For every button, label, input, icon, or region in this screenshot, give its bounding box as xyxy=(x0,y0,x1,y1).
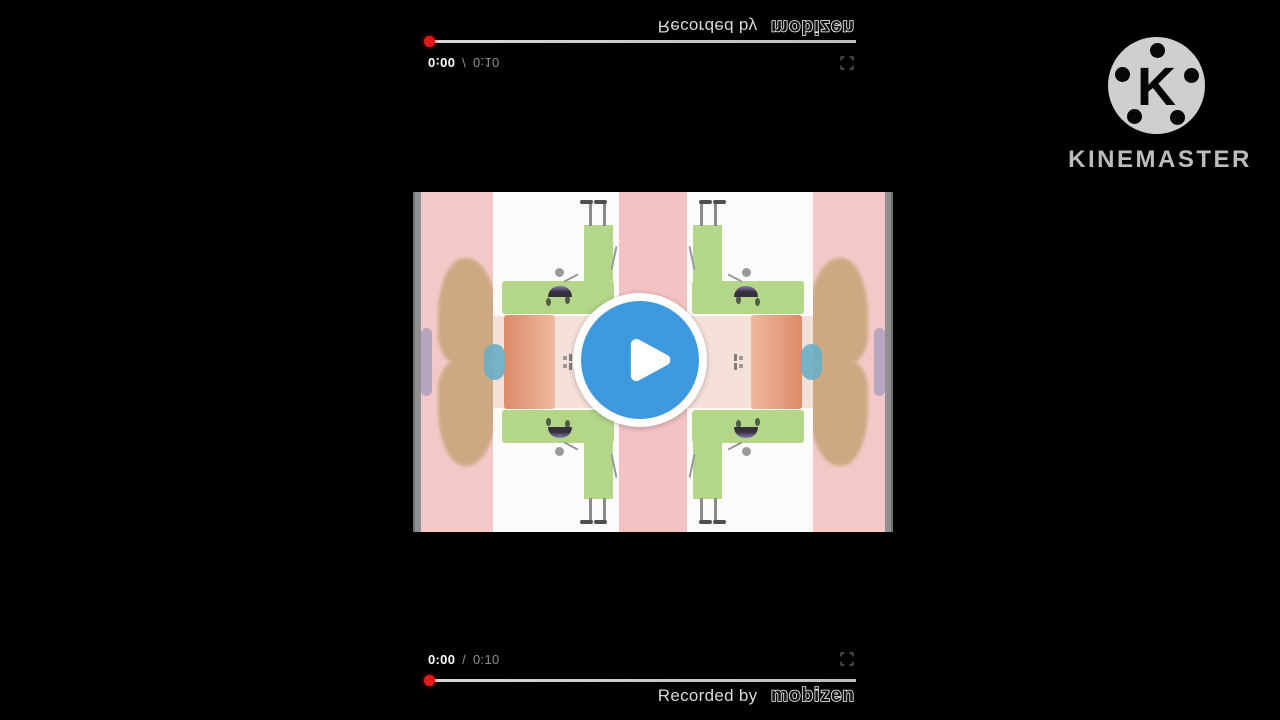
art-eye-right xyxy=(565,296,570,304)
art-green-block-column xyxy=(584,225,613,282)
art-hand xyxy=(555,447,564,456)
art-gray-edge-bar xyxy=(413,192,421,362)
fullscreen-icon[interactable] xyxy=(840,652,854,666)
art-small-glyph xyxy=(569,354,572,361)
art-gray-edge-bar xyxy=(413,362,421,532)
art-gray-edge-bar xyxy=(885,362,893,532)
recorded-by-label: Recorded by mobizen xyxy=(420,14,858,38)
progress-track[interactable] xyxy=(430,41,856,44)
play-button[interactable] xyxy=(573,293,707,427)
art-small-glyph xyxy=(739,356,743,360)
art-green-block-column xyxy=(693,225,722,282)
art-foot-left xyxy=(713,200,726,204)
time-display: 0:00 / 0:10 xyxy=(428,56,500,71)
art-leg-left xyxy=(714,498,717,522)
total-duration: 0:10 xyxy=(473,652,500,667)
art-foot-right xyxy=(594,520,607,524)
mobizen-overlay-top-mirrored: 0:00 / 0:10 Recorded by mobizen xyxy=(420,14,858,74)
art-leg-right xyxy=(700,498,703,522)
art-hand xyxy=(555,268,564,277)
art-hand xyxy=(742,268,751,277)
fullscreen-icon[interactable] xyxy=(840,56,854,70)
art-leg-right xyxy=(700,202,703,226)
art-foot-left xyxy=(713,520,726,524)
progress-bar[interactable] xyxy=(420,38,858,52)
art-eye-left xyxy=(755,418,760,426)
time-display: 0:00 / 0:10 xyxy=(428,652,500,667)
art-foot-right xyxy=(699,200,712,204)
art-teal-arc xyxy=(801,344,822,362)
mobizen-overlay-bottom: 0:00 / 0:10 Recorded by mobizen xyxy=(420,648,858,708)
recorded-by-text: Recorded by xyxy=(658,686,758,705)
recorded-by-text: Recorded by xyxy=(658,17,758,36)
art-eye-left xyxy=(755,298,760,306)
recorded-by-label: Recorded by mobizen xyxy=(420,684,858,708)
current-time: 0:00 xyxy=(428,652,455,667)
mobizen-logo: mobizen xyxy=(771,685,855,706)
art-leg-left xyxy=(589,498,592,522)
kinemaster-logo-icon: K xyxy=(1108,37,1205,134)
kinemaster-k-letter: K xyxy=(1108,37,1205,134)
art-green-block-column xyxy=(584,442,613,499)
art-small-glyph xyxy=(569,363,572,370)
art-foot-left xyxy=(580,520,593,524)
art-small-glyph xyxy=(739,364,743,368)
art-lavender-shape xyxy=(874,362,885,396)
art-hand xyxy=(742,447,751,456)
art-salmon-block xyxy=(751,315,802,362)
art-green-block-column xyxy=(693,442,722,499)
art-salmon-block xyxy=(504,315,555,362)
art-small-glyph xyxy=(734,354,737,361)
art-lavender-shape xyxy=(421,328,432,362)
current-time: 0:00 xyxy=(428,56,455,71)
time-separator: / xyxy=(462,56,466,71)
art-eye-left xyxy=(546,298,551,306)
progress-bar[interactable] xyxy=(420,670,858,684)
art-lavender-shape xyxy=(421,362,432,396)
art-teal-arc xyxy=(484,344,505,362)
video-player-stage: 0:00 / 0:10 Recorded by mobizen K KINE xyxy=(0,0,1280,720)
kinemaster-brand-text: KINEMASTER xyxy=(1060,146,1260,174)
art-salmon-block xyxy=(504,362,555,409)
art-eye-left xyxy=(546,418,551,426)
art-leg-left xyxy=(589,202,592,226)
mobizen-logo: mobizen xyxy=(771,16,855,37)
art-leg-right xyxy=(603,202,606,226)
progress-track[interactable] xyxy=(430,679,856,682)
play-icon xyxy=(602,317,688,403)
art-eye-right xyxy=(736,296,741,304)
art-leg-left xyxy=(714,202,717,226)
art-foot-right xyxy=(699,520,712,524)
art-small-glyph xyxy=(563,364,567,368)
art-foot-left xyxy=(580,200,593,204)
art-small-glyph xyxy=(563,356,567,360)
art-small-glyph xyxy=(734,363,737,370)
art-foot-right xyxy=(594,200,607,204)
art-gray-edge-bar xyxy=(885,192,893,362)
total-duration: 0:10 xyxy=(473,56,500,71)
art-lavender-shape xyxy=(874,328,885,362)
art-leg-right xyxy=(603,498,606,522)
play-button-circle[interactable] xyxy=(581,301,699,419)
time-separator: / xyxy=(462,652,466,667)
art-salmon-block xyxy=(751,362,802,409)
